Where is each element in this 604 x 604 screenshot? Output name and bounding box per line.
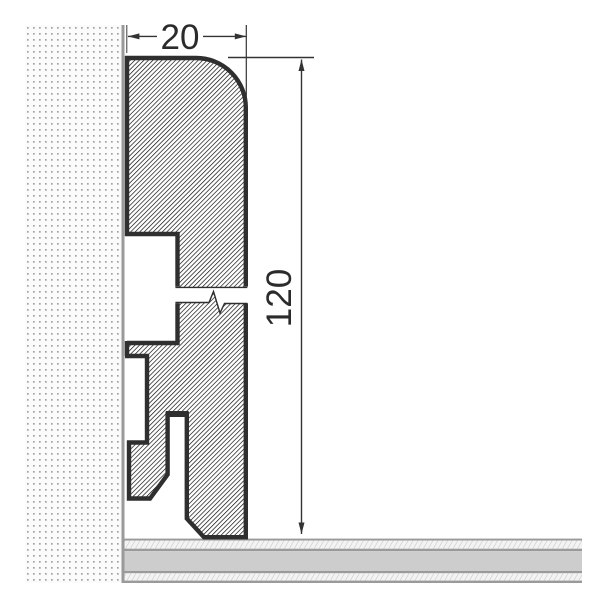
svg-text:20: 20 [161, 18, 200, 57]
svg-text:120: 120 [260, 269, 299, 327]
